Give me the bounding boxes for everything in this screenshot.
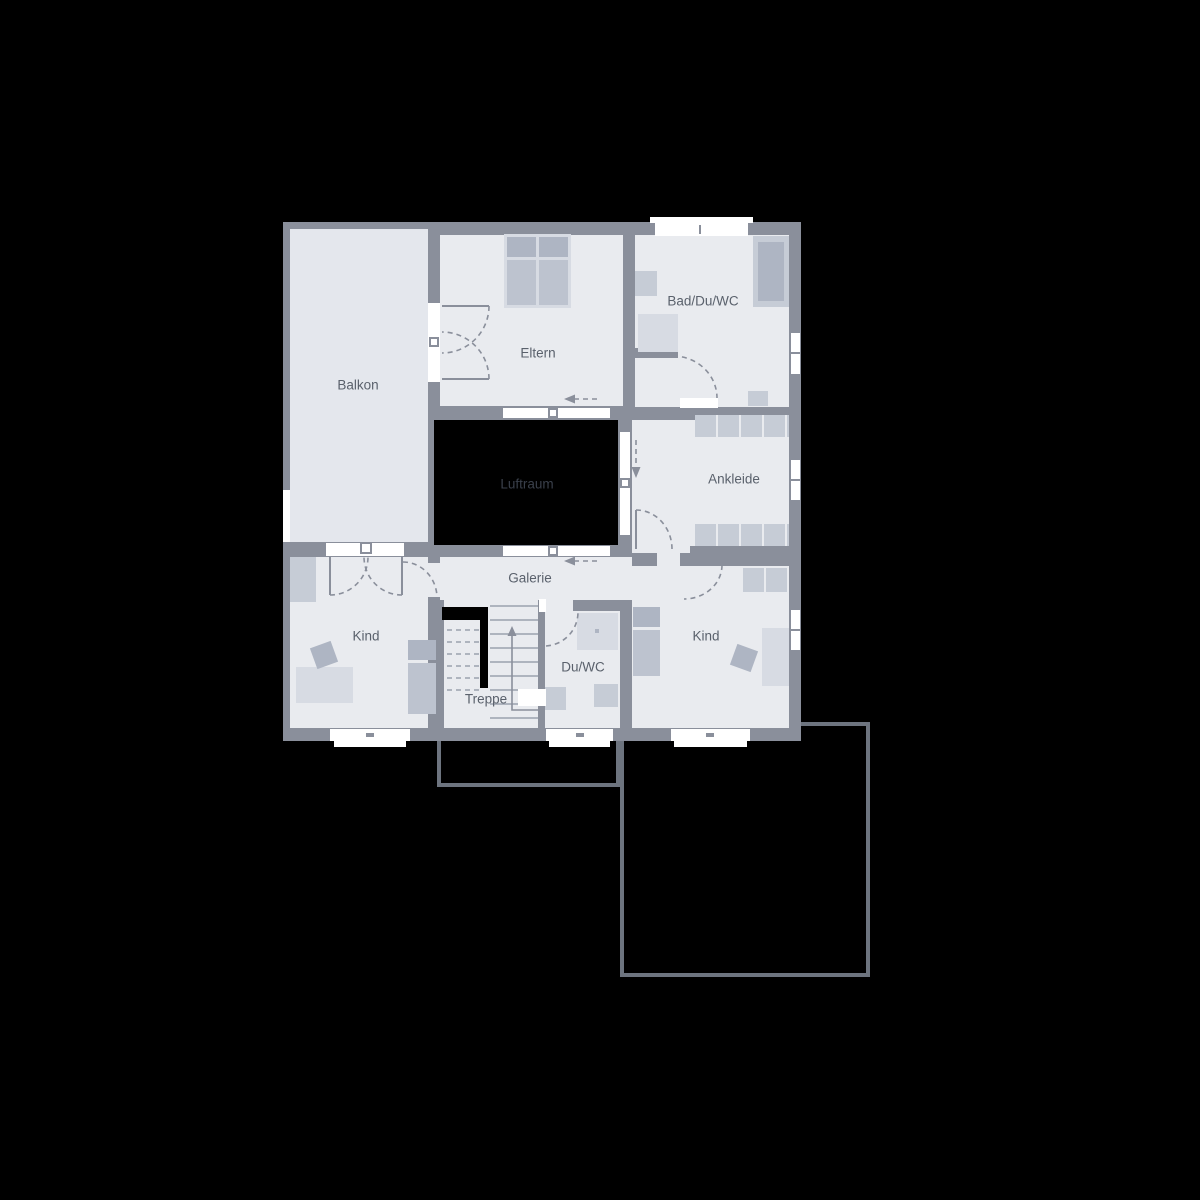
window-divider [699, 225, 701, 234]
window-divider [706, 733, 714, 737]
door-band-bad [680, 398, 718, 408]
door-frame-marker [360, 542, 372, 554]
window-sill-bottom [674, 741, 747, 747]
room-label-kind-right: Kind [692, 629, 719, 644]
door-opening-kind-left [428, 563, 444, 597]
stairwell-wall-vertical [480, 620, 488, 688]
room-label-ankleide: Ankleide [708, 472, 760, 487]
room-label-luftraum: Luftraum [500, 477, 553, 492]
bed-kind-left [408, 663, 436, 714]
washbasin-bad [748, 391, 768, 406]
toilet-duwc [545, 687, 566, 710]
window-divider [791, 352, 800, 354]
door-opening-kind-right [657, 550, 680, 566]
lower-floor-outline-large [620, 722, 870, 977]
room-label-balkon: Balkon [337, 378, 378, 393]
stairwell-wall-horizontal [442, 607, 488, 620]
window-balcony-left [283, 490, 290, 542]
door-frame-marker [429, 337, 439, 347]
desk-kind-right [762, 628, 789, 686]
bed-mattress [507, 260, 536, 305]
room-label-bad: Bad/Du/WC [667, 294, 738, 309]
wardrobe-ankleide-bottom [695, 524, 789, 546]
window-divider [791, 629, 800, 631]
room-label-duwc: Du/WC [561, 660, 605, 675]
railing-marker [548, 546, 558, 556]
window-divider [576, 733, 584, 737]
wardrobe-ankleide-top [695, 415, 789, 437]
room-label-galerie: Galerie [508, 571, 552, 586]
room-label-kind-left: Kind [352, 629, 379, 644]
wall-galerie-duwc [573, 600, 632, 611]
railing-marker [548, 408, 558, 418]
window-bad-top [655, 223, 748, 236]
bathtub-inner [758, 242, 784, 301]
stair-plate [518, 689, 546, 706]
bed-pillow [633, 607, 660, 627]
door-leaf-duwc [539, 599, 546, 612]
bed-pillow [408, 640, 436, 660]
toilet-bad [635, 271, 657, 296]
window-divider [791, 479, 800, 481]
window-divider [366, 733, 374, 737]
window-sill-bottom [549, 741, 610, 747]
window-sill-bottom [334, 741, 406, 747]
wardrobe-kind-right [743, 568, 789, 592]
shower-bad [638, 314, 678, 352]
floor-plan-canvas: Balkon Eltern Bad/Du/WC Ankleide Luftrau… [0, 0, 1200, 1200]
shower-drain [595, 629, 599, 633]
sink-duwc [594, 684, 618, 707]
bed-mattress [539, 260, 568, 305]
corridor-floor [632, 420, 690, 553]
room-label-treppe: Treppe [465, 692, 507, 707]
desk-kind-left [296, 667, 353, 703]
bed-pillow [539, 237, 568, 257]
wardrobe-kind-left [290, 557, 316, 602]
bed-kind-right [633, 630, 660, 676]
railing-marker [620, 478, 630, 488]
bed-pillow [507, 237, 536, 257]
room-label-eltern: Eltern [520, 346, 555, 361]
